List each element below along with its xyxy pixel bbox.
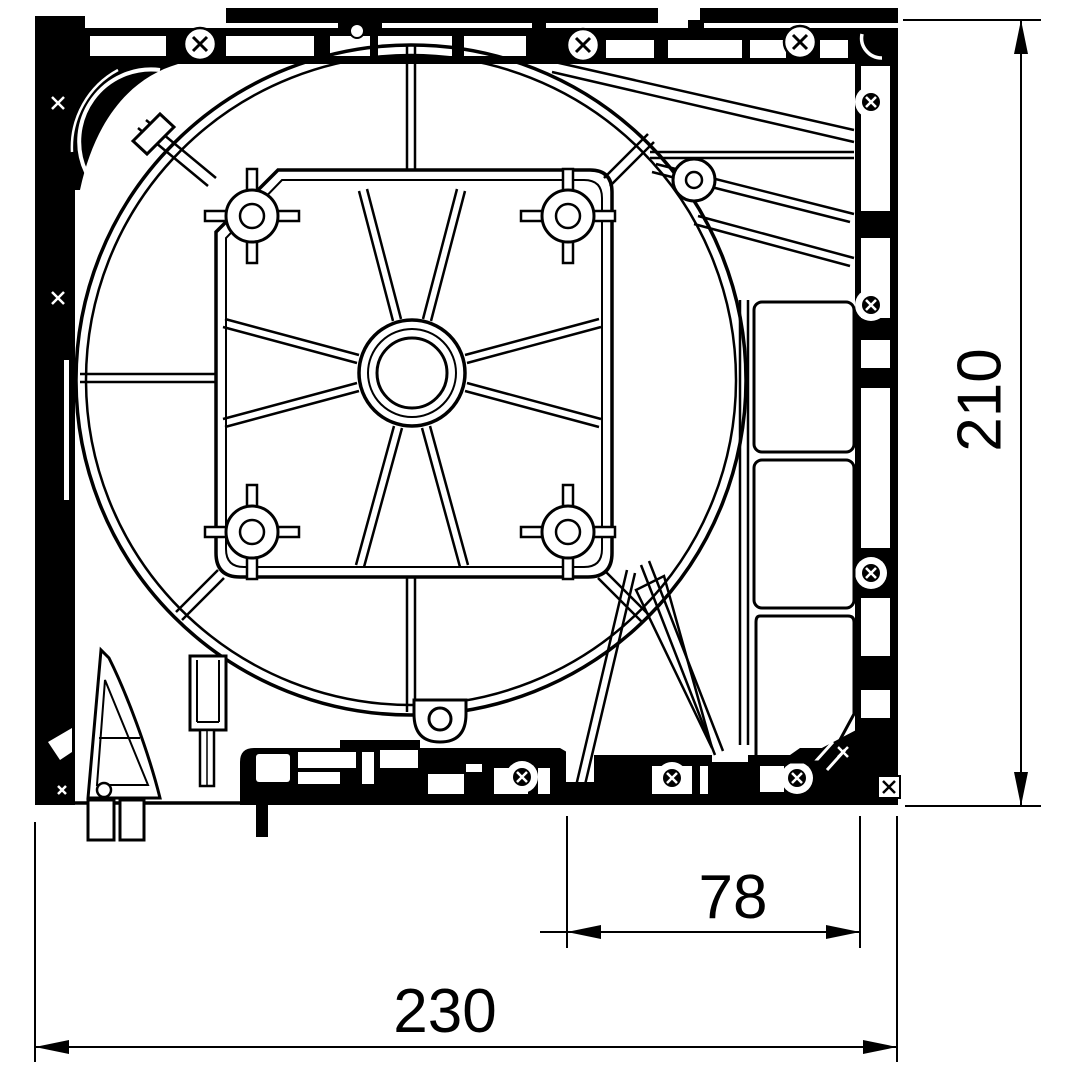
top-rail-pin <box>350 24 364 38</box>
technical-drawing-page: 210 78 230 <box>0 0 1080 1080</box>
plate-inner-line <box>226 180 602 567</box>
screw-top-2 <box>567 29 599 61</box>
left-rail-slit <box>64 360 69 500</box>
screw-bottom-2 <box>656 762 688 794</box>
screw-top-3 <box>784 26 816 58</box>
arrowhead-right <box>826 925 860 939</box>
screw-right-1 <box>855 86 887 118</box>
screw-bottom-3 <box>781 762 813 794</box>
side-panel-2 <box>754 460 854 608</box>
screw-right-3 <box>855 557 887 589</box>
dimension-overall-230: 230 <box>35 816 897 1062</box>
boss-top-right <box>521 169 615 263</box>
dim-label-230: 230 <box>393 977 496 1046</box>
top-strip-mid <box>226 8 658 23</box>
cable-clip <box>190 656 226 786</box>
lower-right-struts <box>576 561 723 789</box>
arrowhead-right <box>863 1040 897 1054</box>
mount-lug <box>673 159 715 201</box>
screw-bottom-1 <box>506 761 538 793</box>
top-strip-left <box>35 16 85 30</box>
boss-bottom-right <box>521 485 615 579</box>
motor-plate <box>80 45 654 712</box>
bracket-foot-1 <box>88 800 114 840</box>
arrowhead-left <box>35 1040 69 1054</box>
dim-label-78: 78 <box>699 863 768 932</box>
gusset-hole <box>97 783 111 797</box>
arrowhead-left <box>567 925 601 939</box>
dim-label-210: 210 <box>945 348 1014 451</box>
motor-hub <box>359 320 465 426</box>
bottom-rail-tab <box>256 805 268 837</box>
screw-bosses <box>205 169 615 579</box>
drawing-canvas: 210 78 230 <box>0 0 1080 1080</box>
side-panel-3 <box>756 616 854 762</box>
side-panel-1 <box>754 302 854 452</box>
arrowhead-down <box>1014 772 1028 806</box>
screw-right-2 <box>855 289 887 321</box>
boss-top-left <box>205 169 299 263</box>
shroud-bottom-tab <box>414 700 466 742</box>
hub-spokes <box>223 189 601 567</box>
bracket-foot-2 <box>120 800 144 840</box>
dimension-height-210: 210 <box>903 20 1041 806</box>
arrowhead-up <box>1014 20 1028 54</box>
screw-top-1 <box>184 28 216 60</box>
dimension-mount-78: 78 <box>540 816 860 948</box>
right-rail-slots <box>861 66 890 718</box>
bottom-left-details <box>88 650 226 840</box>
top-strip-right <box>700 8 898 23</box>
axis-ribs <box>80 45 415 712</box>
